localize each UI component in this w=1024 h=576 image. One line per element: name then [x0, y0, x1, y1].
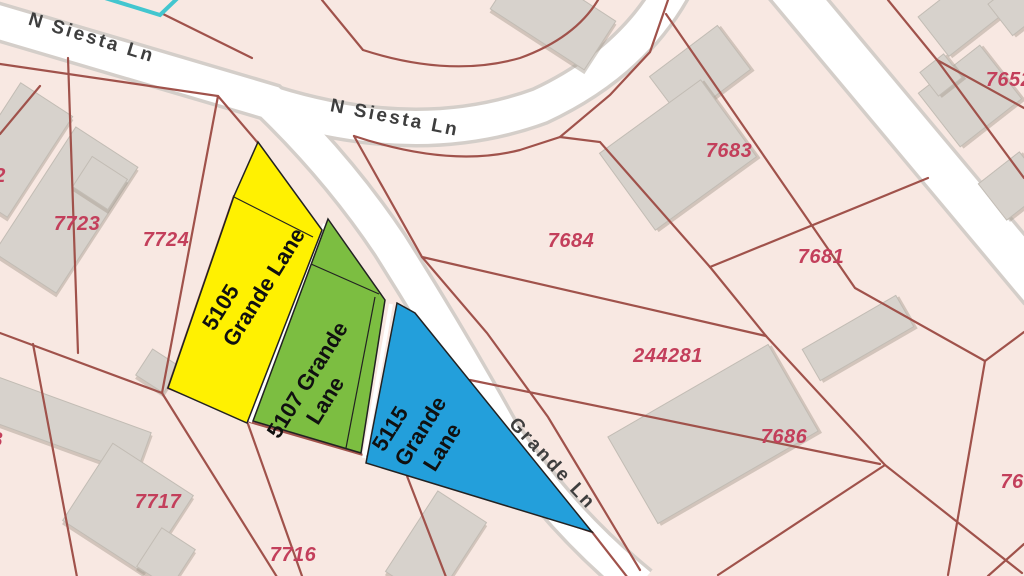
parcel-label-244281: 244281 [632, 345, 703, 367]
parcel-label-76-clipped: 76 [1000, 471, 1024, 493]
parcel-label-7684: 7684 [548, 230, 595, 252]
parcel-label-2-clipped: 2 [0, 165, 6, 187]
parcel-label-7724: 7724 [143, 229, 190, 251]
parcel-label-7717: 7717 [135, 491, 182, 513]
parcel-label-7683: 7683 [706, 140, 753, 162]
parcel-label-7716: 7716 [270, 544, 317, 566]
parcel-label-7652-clipped: 7652 [986, 69, 1024, 91]
parcel-map: 5105 Grande Lane 5107 Grande Lane 5115 G… [0, 0, 1024, 576]
parcel-label-7681: 7681 [798, 246, 845, 268]
parcel-map-viewport: 5105 Grande Lane 5107 Grande Lane 5115 G… [0, 0, 1024, 576]
parcel-label-7723: 7723 [54, 213, 101, 235]
parcel-label-7686: 7686 [761, 426, 808, 448]
parcel-label-8-clipped: 8 [0, 429, 3, 451]
